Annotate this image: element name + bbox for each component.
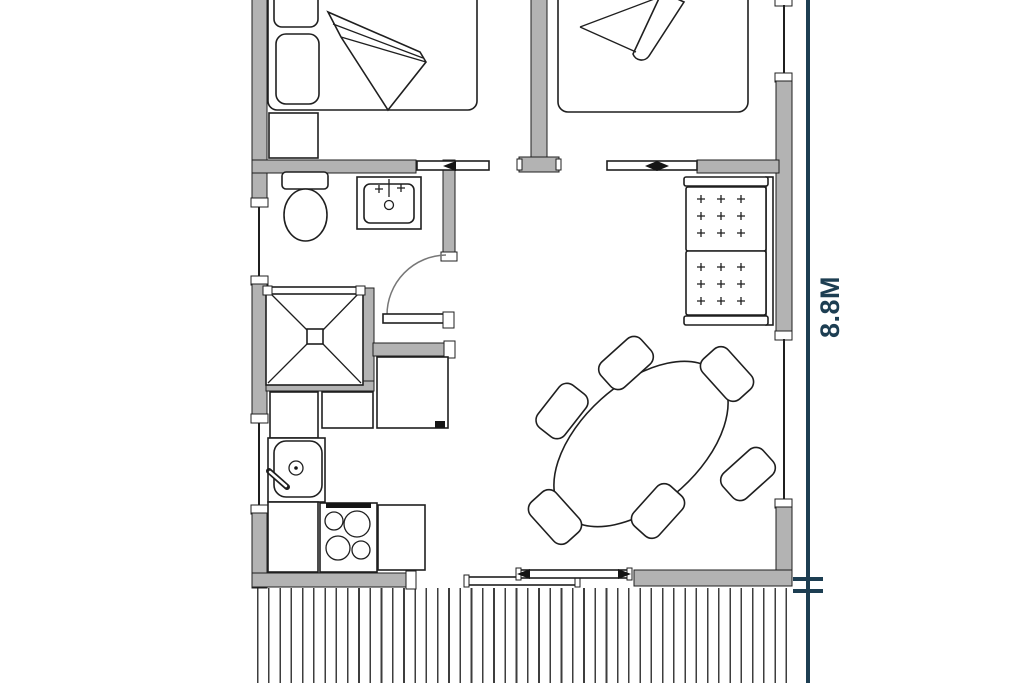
- shower-icon: [263, 286, 365, 385]
- dimension-tick: [793, 589, 823, 593]
- kitchen-sink-icon: [269, 441, 322, 497]
- dimension-label: 8.8M: [816, 255, 844, 359]
- single-bed-icon: [558, 0, 748, 112]
- refrigerator-icon: [377, 357, 448, 428]
- toilet-icon: [282, 172, 328, 241]
- chair-icon: [717, 443, 780, 504]
- bathroom-sink-icon: [357, 177, 421, 229]
- hinged-door-icon: [383, 255, 454, 328]
- dimension-tick: [793, 577, 823, 581]
- stove-icon: [320, 503, 377, 572]
- double-bed-icon: [268, 0, 477, 110]
- sofa-icon: [684, 177, 773, 325]
- floor-plan-drawing: [0, 0, 1024, 683]
- floor-plan-canvas: 8.8M: [0, 0, 1024, 683]
- nightstand-icon: [269, 113, 318, 158]
